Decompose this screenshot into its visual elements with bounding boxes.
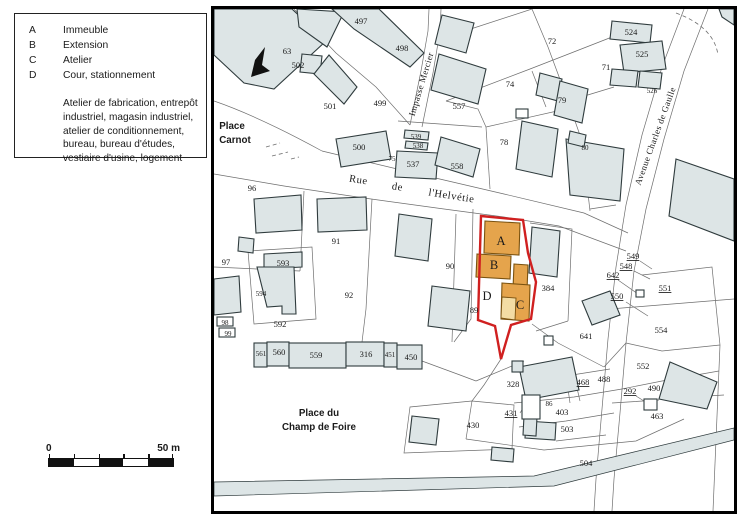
parcel-label-431: 431 — [505, 408, 518, 418]
scale-segment — [99, 459, 124, 466]
parcel-label-551: 551 — [659, 283, 672, 293]
place-carnot-line1: Place — [219, 121, 245, 132]
parcel-label-548: 548 — [620, 261, 633, 271]
place-carnot-line2: Carnot — [219, 135, 251, 146]
parcel-label-430: 430 — [467, 420, 480, 430]
legend-item-d: D Cour, stationnement — [29, 69, 200, 84]
parcel-label-451: 451 — [385, 351, 396, 359]
legend-item-a: A Immeuble — [29, 24, 200, 39]
parcel-label-539: 539 — [411, 133, 422, 141]
parcel-label-74: 74 — [506, 79, 515, 89]
parcel-label-538: 538 — [413, 142, 424, 150]
parcel-label-328: 328 — [507, 379, 520, 389]
rue-helvetie-word3: l'Helvétie — [428, 187, 476, 205]
parcel-label-403: 403 — [556, 407, 569, 417]
parcel-label-642: 642 — [607, 270, 620, 280]
scale-segment — [74, 459, 99, 466]
parcel-label-89: 89 — [470, 305, 479, 315]
parcel-label-468: 468 — [577, 377, 590, 387]
scale-bar: 0 50 m — [46, 443, 180, 467]
parcel-label-525: 525 — [636, 49, 649, 59]
place-champ-de-foire-line1: Place du — [299, 408, 339, 419]
legend-key: C — [29, 54, 63, 69]
legend-key: B — [29, 39, 63, 54]
parcel-label-550: 550 — [611, 291, 624, 301]
parcel-label-75: 75 — [389, 155, 397, 163]
parcel-label-593: 593 — [277, 258, 290, 268]
parcel-label-537: 537 — [407, 159, 420, 169]
parcel-label-560: 560 — [273, 347, 286, 357]
parcel-label-594: 594 — [256, 290, 267, 298]
parcel-label-79: 79 — [558, 95, 567, 105]
scale-segment — [148, 459, 173, 466]
legend-label: Immeuble — [63, 24, 108, 39]
legend-label: Cour, stationnement — [63, 69, 155, 84]
scale-start-label: 0 — [46, 443, 52, 454]
parcel-label-90: 90 — [446, 261, 455, 271]
parcel-label-501: 501 — [324, 101, 337, 111]
legend-label: Extension — [63, 39, 108, 54]
parcel-label-557: 557 — [453, 101, 466, 111]
parcel-label-500: 500 — [353, 142, 366, 152]
parcel-label-450: 450 — [405, 352, 418, 362]
parcel-label-98: 98 — [222, 319, 230, 327]
parcel-label-488: 488 — [598, 374, 611, 384]
parcel-label-86: 86 — [546, 400, 554, 408]
rue-helvetie-word2: de — [391, 181, 404, 194]
parcel-label-72: 72 — [548, 36, 557, 46]
legend-box: A Immeuble B Extension C Atelier D Cour,… — [14, 13, 207, 158]
parcel-label-554: 554 — [655, 325, 669, 335]
parcel-label-502: 502 — [292, 60, 305, 70]
parcel-label-97: 97 — [222, 257, 231, 267]
legend-description: Atelier de fabrication, entrepôt industr… — [63, 97, 200, 167]
parcel-label-561: 561 — [256, 350, 267, 358]
parcel-label-498: 498 — [396, 43, 409, 53]
legend-key: A — [29, 24, 63, 39]
scale-segment — [123, 459, 148, 466]
parcel-label-91: 91 — [332, 236, 341, 246]
zone-b-label: B — [490, 258, 498, 272]
parcel-label-592: 592 — [274, 319, 287, 329]
rue-helvetie-word1: Rue — [348, 174, 368, 188]
place-champ-de-foire-line2: Champ de Foire — [282, 422, 357, 433]
parcel-label-549: 549 — [627, 251, 640, 261]
parcel-label-292: 292 — [624, 386, 637, 396]
parcel-label-559: 559 — [310, 350, 323, 360]
legend-key: D — [29, 69, 63, 84]
scale-end-label: 50 m — [157, 443, 180, 454]
parcel-label-558: 558 — [451, 161, 464, 171]
parcel-label-504: 504 — [580, 458, 594, 468]
parcel-label-63: 63 — [283, 46, 292, 56]
parcel-label-384: 384 — [542, 283, 556, 293]
avenue-de-gaulle-label: Avenue Charles de Gaulle — [633, 86, 678, 187]
map-canvas: 4974986350249950150055753953853755875787… — [214, 9, 734, 511]
cadastral-map: 4974986350249950150055753953853755875787… — [211, 6, 737, 514]
zone-c-label: C — [516, 298, 524, 312]
parcel-label-71: 71 — [602, 62, 611, 72]
zone-a-label: A — [496, 234, 505, 248]
parcel-label-552: 552 — [637, 361, 650, 371]
parcel-label-499: 499 — [374, 98, 387, 108]
parcel-label-503: 503 — [561, 424, 574, 434]
scale-bar-graphic — [48, 458, 174, 467]
zone-d-label: D — [482, 289, 491, 303]
scale-segment — [49, 459, 74, 466]
building-c-annex — [501, 297, 516, 320]
parcel-label-78: 78 — [500, 137, 509, 147]
highlight-layer — [476, 216, 536, 359]
parcel-label-96: 96 — [248, 183, 257, 193]
parcel-label-497: 497 — [355, 16, 368, 26]
legend-label: Atelier — [63, 54, 92, 69]
page: A Immeuble B Extension C Atelier D Cour,… — [0, 0, 738, 522]
parcel-label-99: 99 — [225, 330, 233, 338]
parcel-label-490: 490 — [648, 383, 661, 393]
parcel-label-641: 641 — [580, 331, 593, 341]
parcel-label-92: 92 — [345, 290, 354, 300]
parcel-label-80: 80 — [582, 144, 590, 152]
legend-item-c: C Atelier — [29, 54, 200, 69]
parcel-label-526: 526 — [647, 87, 658, 95]
parcel-label-463: 463 — [651, 411, 664, 421]
parcel-label-316: 316 — [360, 349, 373, 359]
legend-item-b: B Extension — [29, 39, 200, 54]
parcel-label-524: 524 — [625, 27, 639, 37]
